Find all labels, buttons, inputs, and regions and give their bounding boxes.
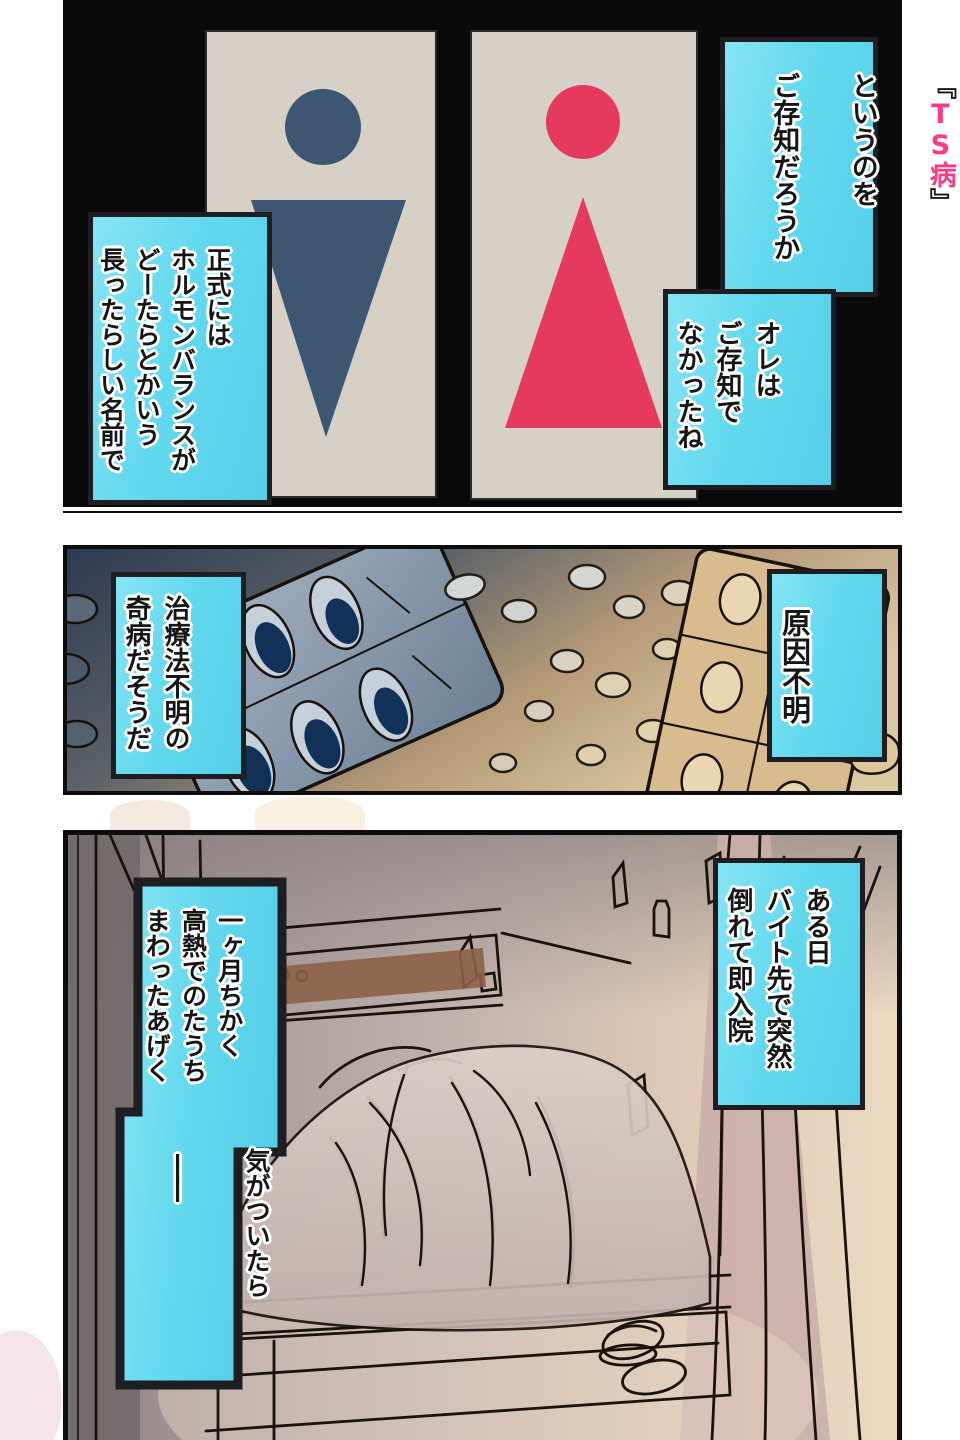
ts-disease-highlight: TS病: [925, 99, 956, 188]
speech-text: 『TS病』 というのを ご存知だろうか: [725, 42, 960, 292]
caption-text: 治療法不明の 奇病だそうだ: [116, 577, 216, 774]
panel-pills: 治療法不明の 奇病だそうだ 原因不明: [63, 545, 902, 795]
panel-divider-line: [63, 511, 902, 513]
caption-box-incurable: 治療法不明の 奇病だそうだ: [111, 572, 246, 779]
caption-box-when-awoke: 気がついたら ――: [120, 1112, 238, 1385]
panel-hospital-room: ある日 バイト先で突然 倒れて即入院 一ヶ月ちかく 高熱でのたうち まわったあげ…: [63, 830, 902, 1440]
speech-box-formal-name: 正式には ホルモンバランスが どーたらとかいう 長ったらしい名前で: [88, 212, 272, 505]
panel-restroom-signs: 『TS病』 というのを ご存知だろうか オレは ご存知で なかったね 正式には …: [63, 0, 902, 507]
caption-text: ある日 バイト先で突然 倒れて即入院: [718, 863, 845, 1105]
art-bleed-blob-bottom-left: [0, 1330, 62, 1440]
speech-box-ore: オレは ご存知で なかったね: [663, 289, 836, 490]
manga-page: 『TS病』 というのを ご存知だろうか オレは ご存知で なかったね 正式には …: [0, 0, 960, 1440]
caption-box-cause-unknown: 原因不明: [767, 569, 887, 762]
caption-text: 原因不明: [772, 574, 854, 757]
long-dash: ――: [159, 1154, 198, 1385]
speech-box-ts-disease: 『TS病』 というのを ご存知だろうか: [720, 37, 878, 297]
speech-text: オレは ご存知で なかったね: [668, 294, 805, 485]
caption-box-hospitalized: ある日 バイト先で突然 倒れて即入院: [713, 858, 865, 1110]
caption-text: 気がついたら ――: [120, 1112, 330, 1385]
art-bleed-blob: [110, 800, 190, 830]
art-bleed-blob: [255, 796, 365, 830]
speech-text: 正式には ホルモンバランスが どーたらとかいう 長ったらしい名前で: [93, 217, 249, 500]
